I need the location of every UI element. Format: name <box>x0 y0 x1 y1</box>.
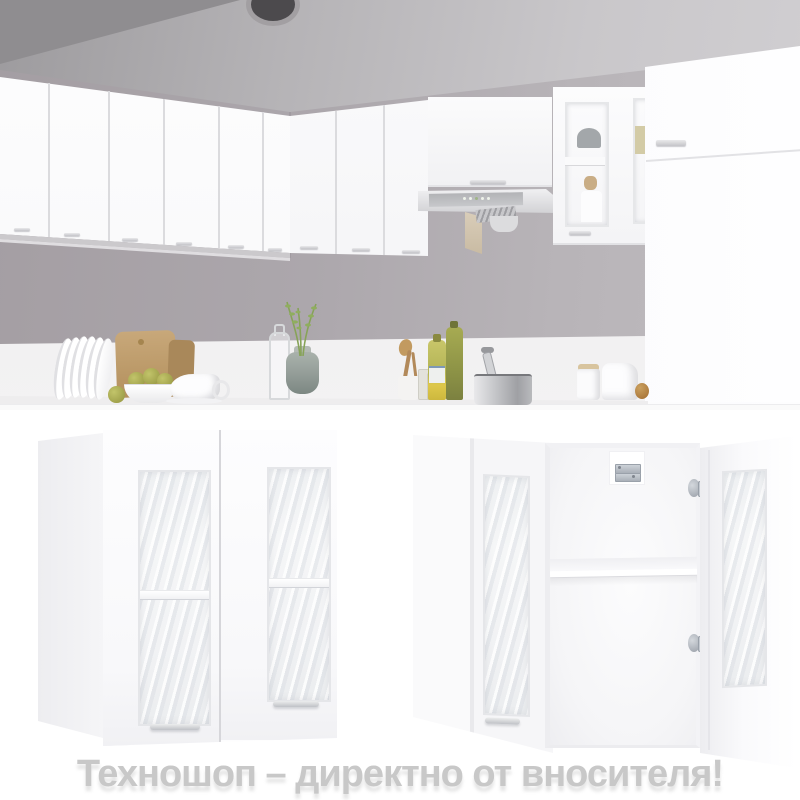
door-seam <box>163 99 165 245</box>
open-door-right <box>700 436 796 768</box>
cabinet-side-panel <box>38 433 103 738</box>
cabinet-handle <box>569 231 591 235</box>
product-listing-image: Техношоп – директно от вносителя! <box>0 0 800 800</box>
canister-silhouette <box>581 191 602 222</box>
door-seam <box>335 111 337 254</box>
saucer <box>166 398 222 404</box>
vase <box>286 352 319 394</box>
cabinet-interior <box>545 443 700 748</box>
shelf-item <box>635 126 646 154</box>
door-seam <box>108 91 110 241</box>
hood-button <box>469 197 472 200</box>
hood-duct <box>490 216 518 232</box>
teapot-silhouette <box>577 128 601 148</box>
white-jug <box>602 363 638 400</box>
green-sprigs <box>280 294 324 356</box>
counter-front-edge <box>0 404 800 410</box>
oil-bottle-cap <box>450 321 458 328</box>
cabinet-handle <box>470 180 506 184</box>
interior-shelf <box>550 557 697 586</box>
door-seam <box>218 106 220 248</box>
door-glass-panel <box>138 470 211 726</box>
pear <box>108 386 125 403</box>
cabinet-handle <box>268 248 282 251</box>
cabinet-open-render <box>400 425 800 785</box>
door-seam <box>383 105 385 255</box>
cabinet-handle <box>352 248 370 251</box>
display-shelf <box>565 157 605 166</box>
door-handle <box>485 717 520 724</box>
door-handle <box>150 724 200 730</box>
hood-button <box>463 197 466 200</box>
cabinet-handle <box>64 233 80 236</box>
door-frame-line <box>708 450 710 750</box>
hood-button <box>481 197 484 200</box>
cabinet-front <box>103 430 337 746</box>
canister <box>577 369 600 400</box>
hood-button <box>487 197 490 200</box>
oil-bottle-label <box>429 366 445 383</box>
watermark-text: Техношоп – директно от вносителя! <box>0 750 800 800</box>
door-glass-panel <box>267 467 331 702</box>
open-door-left <box>413 435 553 753</box>
cabinet-handle <box>300 246 318 249</box>
cabinet-handle <box>402 250 420 253</box>
cooking-pot <box>474 374 532 405</box>
door-glass-panel <box>722 469 767 688</box>
cabinet-handle <box>228 245 244 248</box>
tall-cabinet-handle <box>656 140 686 146</box>
oil-bottle-cap <box>433 334 441 342</box>
shelf-through-glass <box>140 590 209 600</box>
door-handle <box>273 701 319 707</box>
shelf-through-glass <box>269 578 329 588</box>
small-jar <box>584 176 597 190</box>
door-seam <box>262 112 264 251</box>
door-glass-panel <box>483 474 530 717</box>
egg <box>635 383 649 399</box>
cabinet-handle <box>176 242 192 245</box>
utensil-crock <box>398 376 420 400</box>
kitchen-photo <box>0 0 800 410</box>
hood-button <box>475 197 478 200</box>
cabinet-closed-render <box>38 428 338 753</box>
cabinet-handle <box>122 238 138 241</box>
door-seam <box>48 83 50 237</box>
cabinet-handle <box>14 228 30 231</box>
gravy-boat-handle <box>212 380 230 400</box>
hanging-bracket <box>610 452 644 484</box>
cabinet-above-hood <box>428 97 552 187</box>
board-hole <box>138 339 144 345</box>
door-seam <box>219 430 221 746</box>
oil-bottle <box>446 327 463 400</box>
